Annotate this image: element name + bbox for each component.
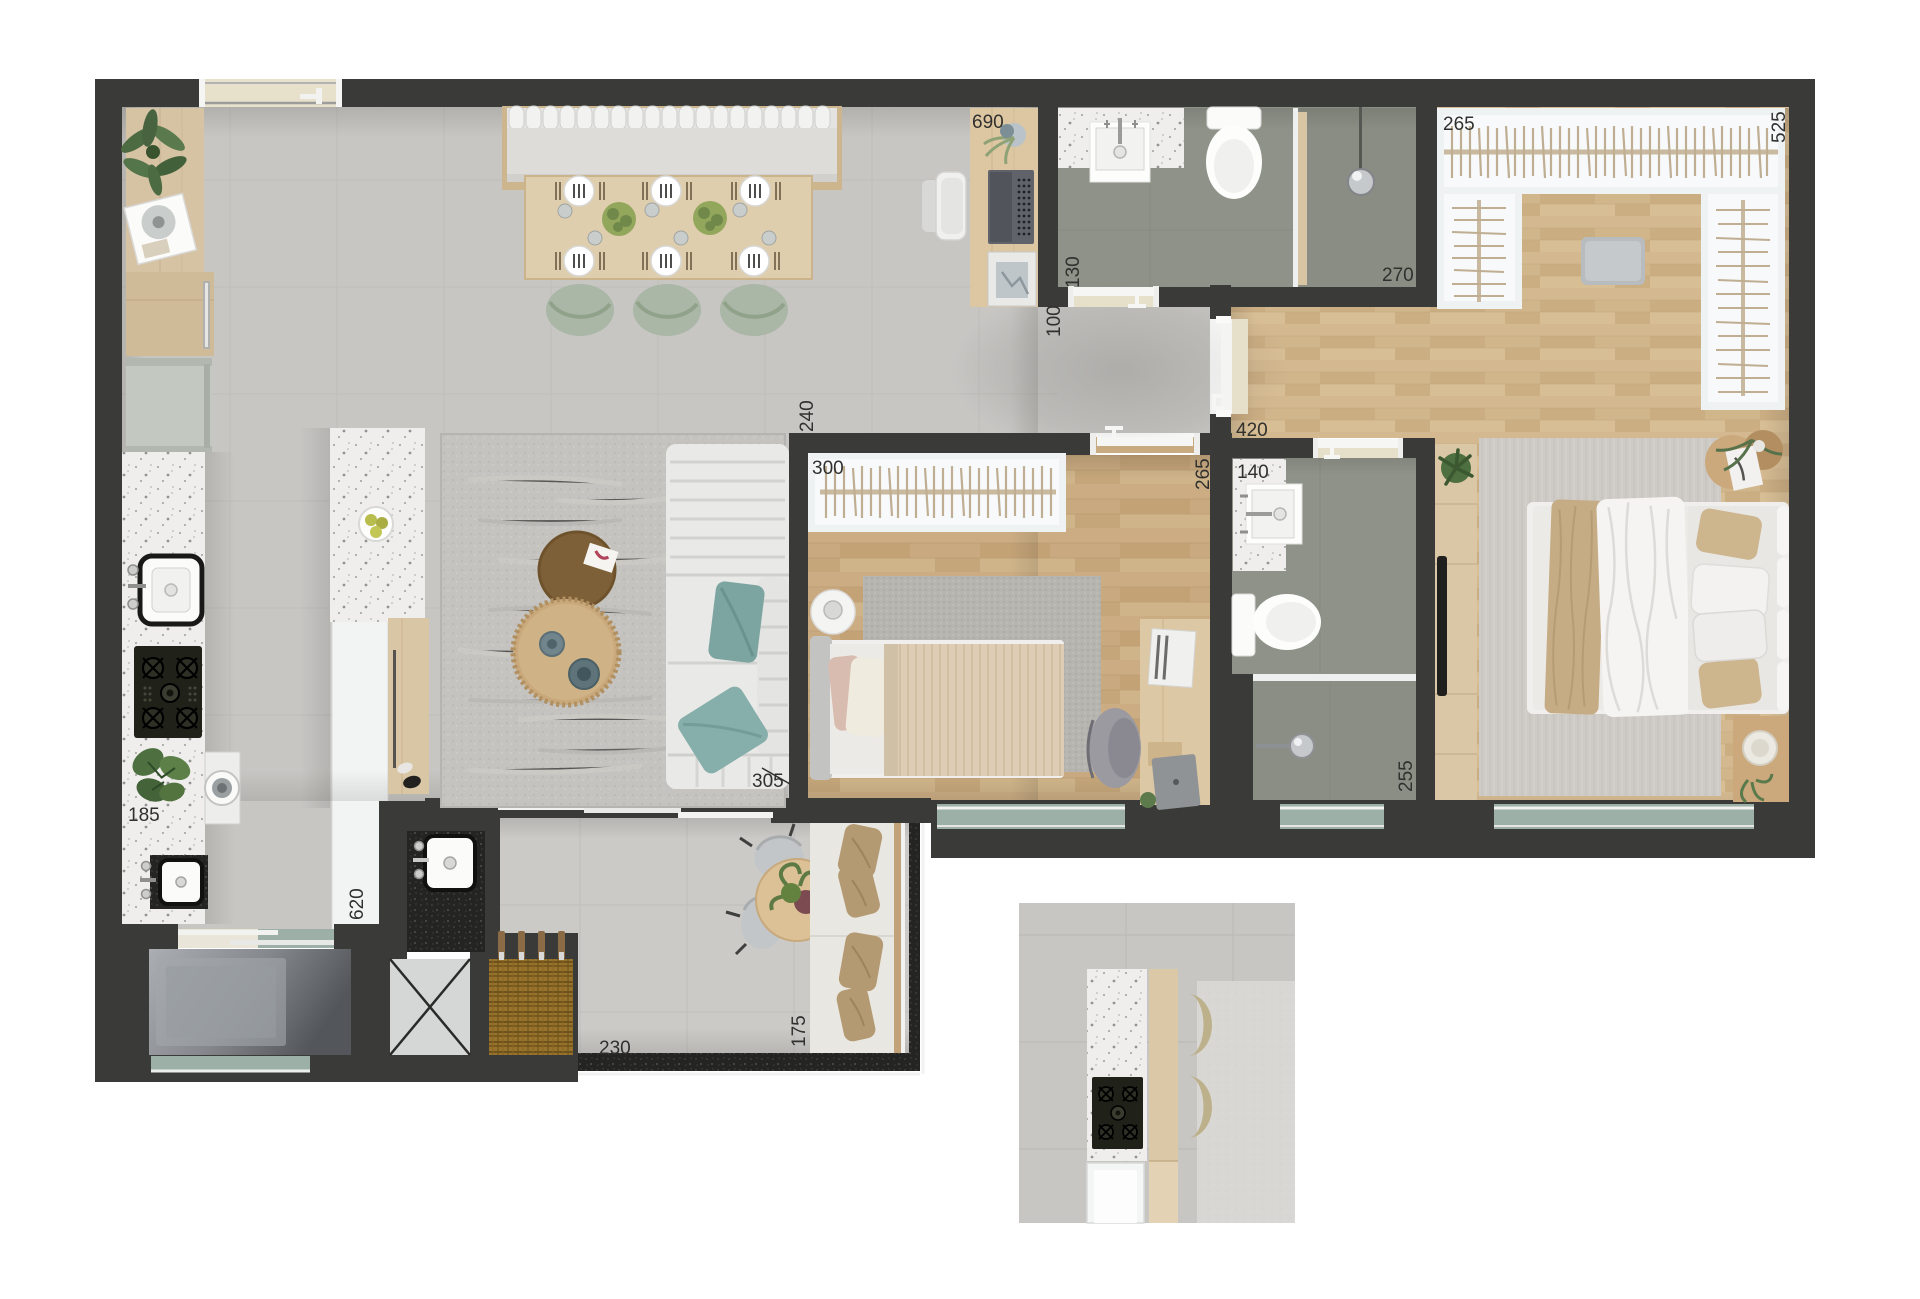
svg-text:230: 230	[599, 1038, 631, 1059]
svg-text:525: 525	[1769, 111, 1790, 143]
svg-text:690: 690	[972, 112, 1004, 133]
svg-text:175: 175	[789, 1015, 810, 1047]
svg-text:185: 185	[128, 805, 160, 826]
svg-text:255: 255	[1396, 760, 1417, 792]
svg-text:270: 270	[1382, 265, 1414, 286]
svg-text:265: 265	[1443, 114, 1475, 135]
svg-text:300: 300	[812, 458, 844, 479]
svg-text:130: 130	[1063, 256, 1084, 288]
svg-text:265: 265	[1193, 458, 1214, 490]
svg-text:100: 100	[1044, 305, 1065, 337]
svg-text:140: 140	[1237, 462, 1269, 483]
svg-text:620: 620	[347, 888, 368, 920]
svg-text:240: 240	[797, 400, 818, 432]
svg-text:420: 420	[1236, 420, 1268, 441]
svg-text:305: 305	[752, 771, 784, 792]
